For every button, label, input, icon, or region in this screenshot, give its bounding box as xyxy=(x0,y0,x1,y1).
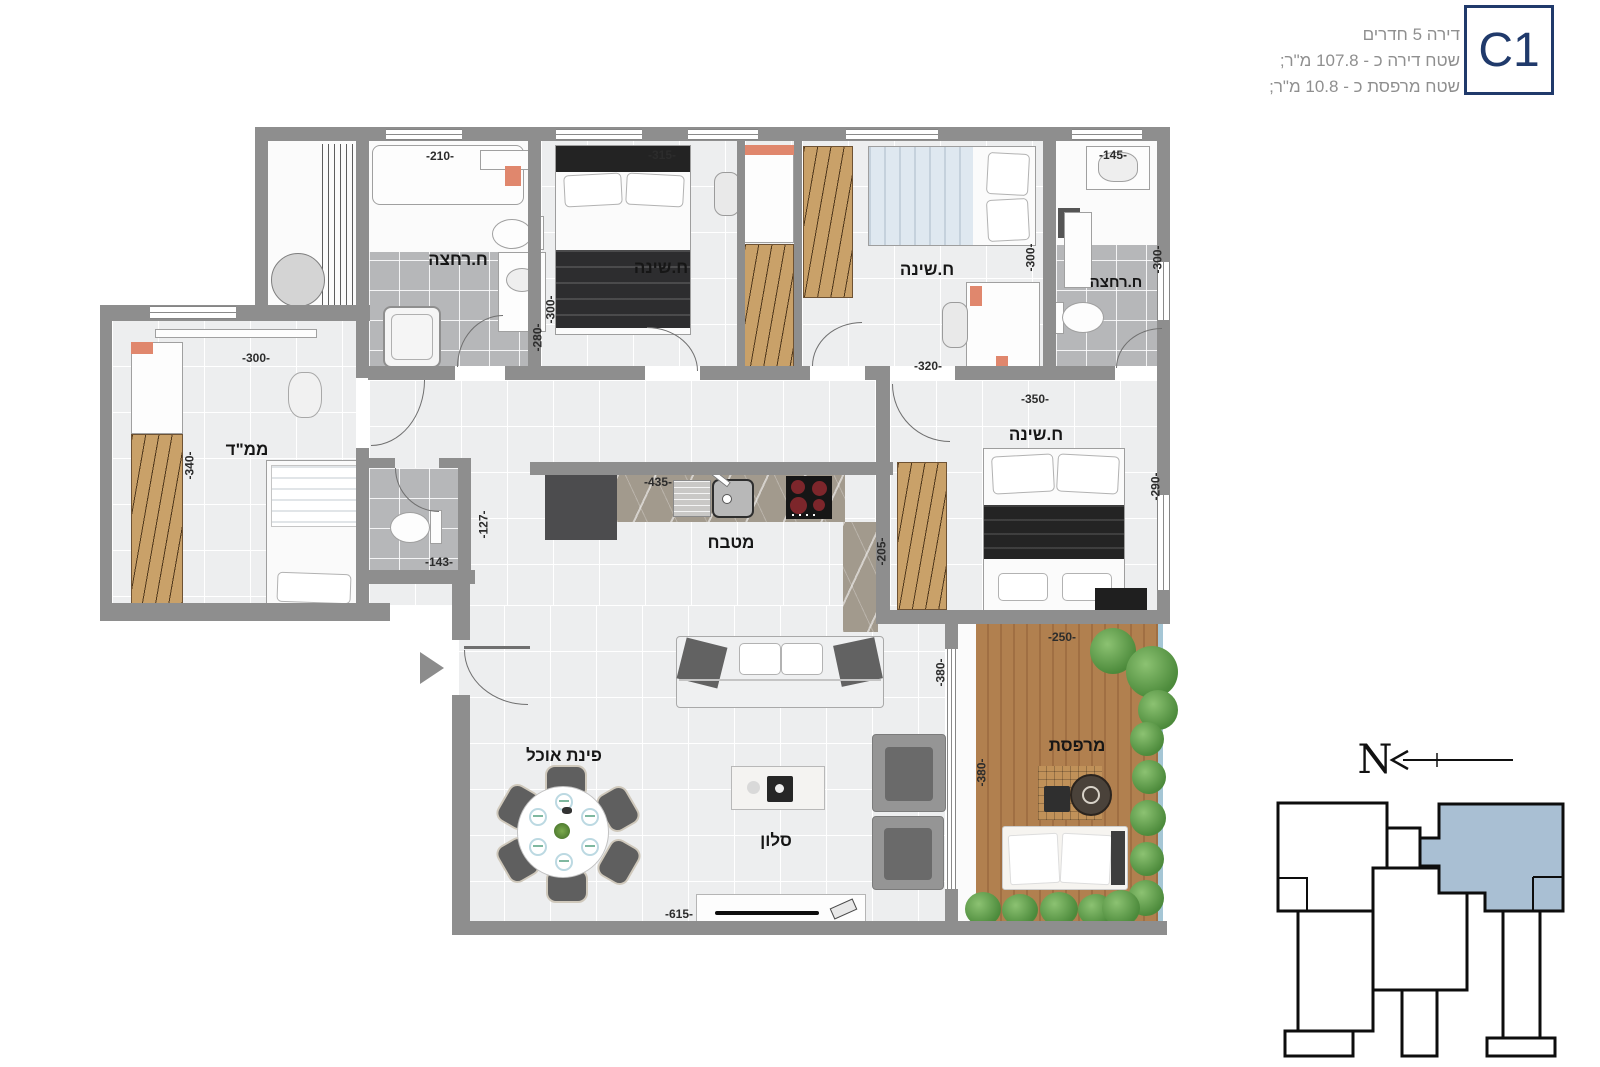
dim-balcony-width: -250- xyxy=(1030,631,1094,644)
dim-wc-width: -143- xyxy=(407,556,471,569)
room-label-bed1: ח.שינה xyxy=(611,258,711,278)
bath1-toilet-bowl xyxy=(492,219,532,249)
mamad-desk-accent xyxy=(131,342,153,354)
wall-service-left xyxy=(255,127,268,319)
table-dish xyxy=(562,807,572,814)
faucet xyxy=(722,494,732,504)
place-setting xyxy=(581,838,599,856)
laundry-drying-rack xyxy=(322,144,356,306)
sofa-pillow xyxy=(739,643,781,675)
wall-niche-right xyxy=(794,140,802,366)
master-nightstand xyxy=(1095,588,1147,610)
window xyxy=(688,129,758,140)
bed2-pillow xyxy=(986,198,1030,242)
dim-bed1-height: -300- xyxy=(545,278,558,342)
wc-toilet-bowl xyxy=(390,512,430,543)
bed2-bed xyxy=(868,146,1036,246)
coffee-table-plate xyxy=(747,781,760,794)
wall-bed2-bath2 xyxy=(1043,140,1056,366)
master-blanket xyxy=(984,505,1124,559)
master-pillow xyxy=(1056,453,1120,494)
mamad-pillow xyxy=(276,572,351,605)
bed1-pillow xyxy=(563,173,623,208)
dim-kitchen-height: -205- xyxy=(876,520,889,584)
coffee-table-decor xyxy=(775,784,784,793)
mamad-window-track xyxy=(155,329,317,338)
dim-bath2-height: -300- xyxy=(1152,228,1165,292)
apartment-title: דירה 5 חדרים xyxy=(1150,22,1460,48)
outdoor-table xyxy=(1070,774,1112,816)
balcony-area-text: שטח מרפסת כ - 10.8 מ"ר; xyxy=(1150,74,1460,100)
header-text-block: דירה 5 חדרים שטח דירה כ - 107.8 מ"ר; שטח… xyxy=(1150,22,1460,100)
room-label-bed2: ח.שינה xyxy=(877,260,977,280)
window-mamad xyxy=(150,306,236,319)
room-label-living: סלון xyxy=(726,831,826,851)
bed2-desk-accent xyxy=(970,286,982,306)
apartment-area-text: שטח דירה כ - 107.8 מ"ר; xyxy=(1150,48,1460,74)
plant xyxy=(1130,800,1166,836)
wall-master-west xyxy=(876,380,890,624)
wall-wc-south xyxy=(369,570,475,584)
floorplan-page: דירה 5 חדרים שטח דירה כ - 107.8 מ"ר; שטח… xyxy=(0,0,1600,1067)
armchair-cushion xyxy=(885,747,933,801)
wardrobe xyxy=(803,146,853,298)
dim-master-width: -350- xyxy=(1003,393,1067,406)
wall-bottom xyxy=(452,921,1167,935)
wall-mamad-left xyxy=(100,305,112,621)
window xyxy=(386,129,462,140)
unit-badge: C1 xyxy=(1464,5,1554,95)
outdoor-tray xyxy=(1044,786,1070,812)
burner xyxy=(812,481,827,496)
mamad-bedding xyxy=(271,465,357,527)
place-setting xyxy=(581,808,599,826)
wall-kitchen-north xyxy=(530,462,893,475)
wall-living-west xyxy=(452,695,470,921)
wall-segment xyxy=(368,366,455,380)
kitchen-sink xyxy=(712,479,754,518)
shower-inner xyxy=(391,314,433,360)
north-arrow-icon: N xyxy=(1358,737,1514,783)
north-label: N xyxy=(1358,737,1393,783)
dim-bath1-width: -210- xyxy=(408,150,472,163)
armchair xyxy=(872,734,946,812)
keyplan: N xyxy=(1245,718,1575,1067)
armchair-cushion xyxy=(884,828,932,880)
tv-screen xyxy=(715,911,819,915)
dim-balcony-height: -380- xyxy=(976,741,989,805)
dim-master-height: -290- xyxy=(1150,455,1163,519)
door-entrance-leaf xyxy=(464,646,530,649)
wall-mamad-bottom xyxy=(100,603,390,621)
dim-bed1-width: -315- xyxy=(630,149,694,162)
table-centerpiece xyxy=(554,823,570,839)
sofa-seat-line xyxy=(679,679,881,681)
bed1-bed xyxy=(555,145,691,335)
master-pillow-small xyxy=(998,573,1048,601)
window xyxy=(556,129,642,140)
desk-chair xyxy=(942,302,968,348)
dim-mamad-height: -340- xyxy=(184,434,197,498)
washing-machine xyxy=(271,253,325,307)
wardrobe xyxy=(897,462,947,610)
wall-segment xyxy=(505,366,645,380)
wall-living-west xyxy=(452,584,470,640)
armchair xyxy=(872,816,944,890)
mamad-desk xyxy=(131,342,183,434)
dim-living-width: -615- xyxy=(647,908,711,921)
coffee-table xyxy=(731,766,825,810)
sofa xyxy=(676,636,884,708)
room-label-kitchen: מטבח xyxy=(681,533,781,553)
wc-toilet-tank xyxy=(430,510,442,544)
bath2-toilet-bowl xyxy=(1062,302,1104,333)
remote-icon xyxy=(830,898,858,919)
master-pillow xyxy=(991,453,1055,494)
bath1-accent xyxy=(505,166,521,186)
wall-niche-left xyxy=(737,140,745,366)
dim-living-height: -380- xyxy=(935,641,948,705)
refrigerator xyxy=(545,474,617,540)
wall-mamad-east xyxy=(356,448,369,608)
entry-arrow-icon xyxy=(420,652,444,684)
niche-desk xyxy=(744,145,794,243)
place-setting xyxy=(529,808,547,826)
window xyxy=(1072,129,1142,140)
cooktop-knobs xyxy=(792,514,818,516)
sliding-door-balcony xyxy=(947,649,956,889)
wall-wc xyxy=(369,458,395,468)
bed2-blanket xyxy=(869,147,973,245)
window xyxy=(846,129,938,140)
wardrobe xyxy=(744,244,794,378)
dim-bath2-width: -145- xyxy=(1081,149,1145,162)
burner xyxy=(790,497,807,514)
burner xyxy=(813,499,825,511)
wall-balcony-stub xyxy=(945,889,958,935)
room-label-master: ח.שינה xyxy=(986,425,1086,445)
niche-desk-accent xyxy=(744,145,794,155)
bed2-pillow xyxy=(986,152,1030,196)
mamad-chair xyxy=(288,372,322,418)
outdoor-table-decor xyxy=(1082,786,1100,804)
outdoor-side-table xyxy=(1111,831,1125,885)
wall-service-divider xyxy=(356,140,369,378)
plant xyxy=(1132,760,1166,794)
dim-bed2-width: -320- xyxy=(896,360,960,373)
mamad-bed xyxy=(266,460,360,608)
bed1-pillow xyxy=(625,173,685,208)
wall-segment xyxy=(955,366,1115,380)
room-label-dining: פינת אוכל xyxy=(514,746,614,766)
dim-bed2-height: -300- xyxy=(1025,226,1038,290)
place-setting xyxy=(555,853,573,871)
sofa-pillow xyxy=(781,643,823,675)
balcony-threshold xyxy=(956,624,976,921)
outdoor-cushion xyxy=(1060,833,1113,886)
dim-wc-height: -127- xyxy=(478,493,491,557)
plant xyxy=(1130,722,1164,756)
outdoor-sofa xyxy=(1002,826,1128,890)
burner xyxy=(791,480,805,494)
wardrobe xyxy=(131,434,183,606)
room-label-balcony: מרפסת xyxy=(1027,736,1127,756)
plant xyxy=(1130,842,1164,876)
place-setting xyxy=(529,838,547,856)
dim-kitchen-width: -435- xyxy=(626,476,690,489)
wall-segment xyxy=(700,366,810,380)
dim-mamad-width: -300- xyxy=(224,352,288,365)
dining-table xyxy=(517,786,609,878)
room-label-mamad: ממ"ד xyxy=(197,440,297,460)
sofa-pillow-dark xyxy=(677,638,728,689)
kitchen-counter-vertical xyxy=(843,522,878,632)
outdoor-cushion xyxy=(1008,833,1061,886)
wall-segment xyxy=(865,366,890,380)
wall-master-south xyxy=(876,610,1170,624)
cooktop xyxy=(786,476,832,519)
room-label-bath1: ח.רחצה xyxy=(408,250,508,270)
